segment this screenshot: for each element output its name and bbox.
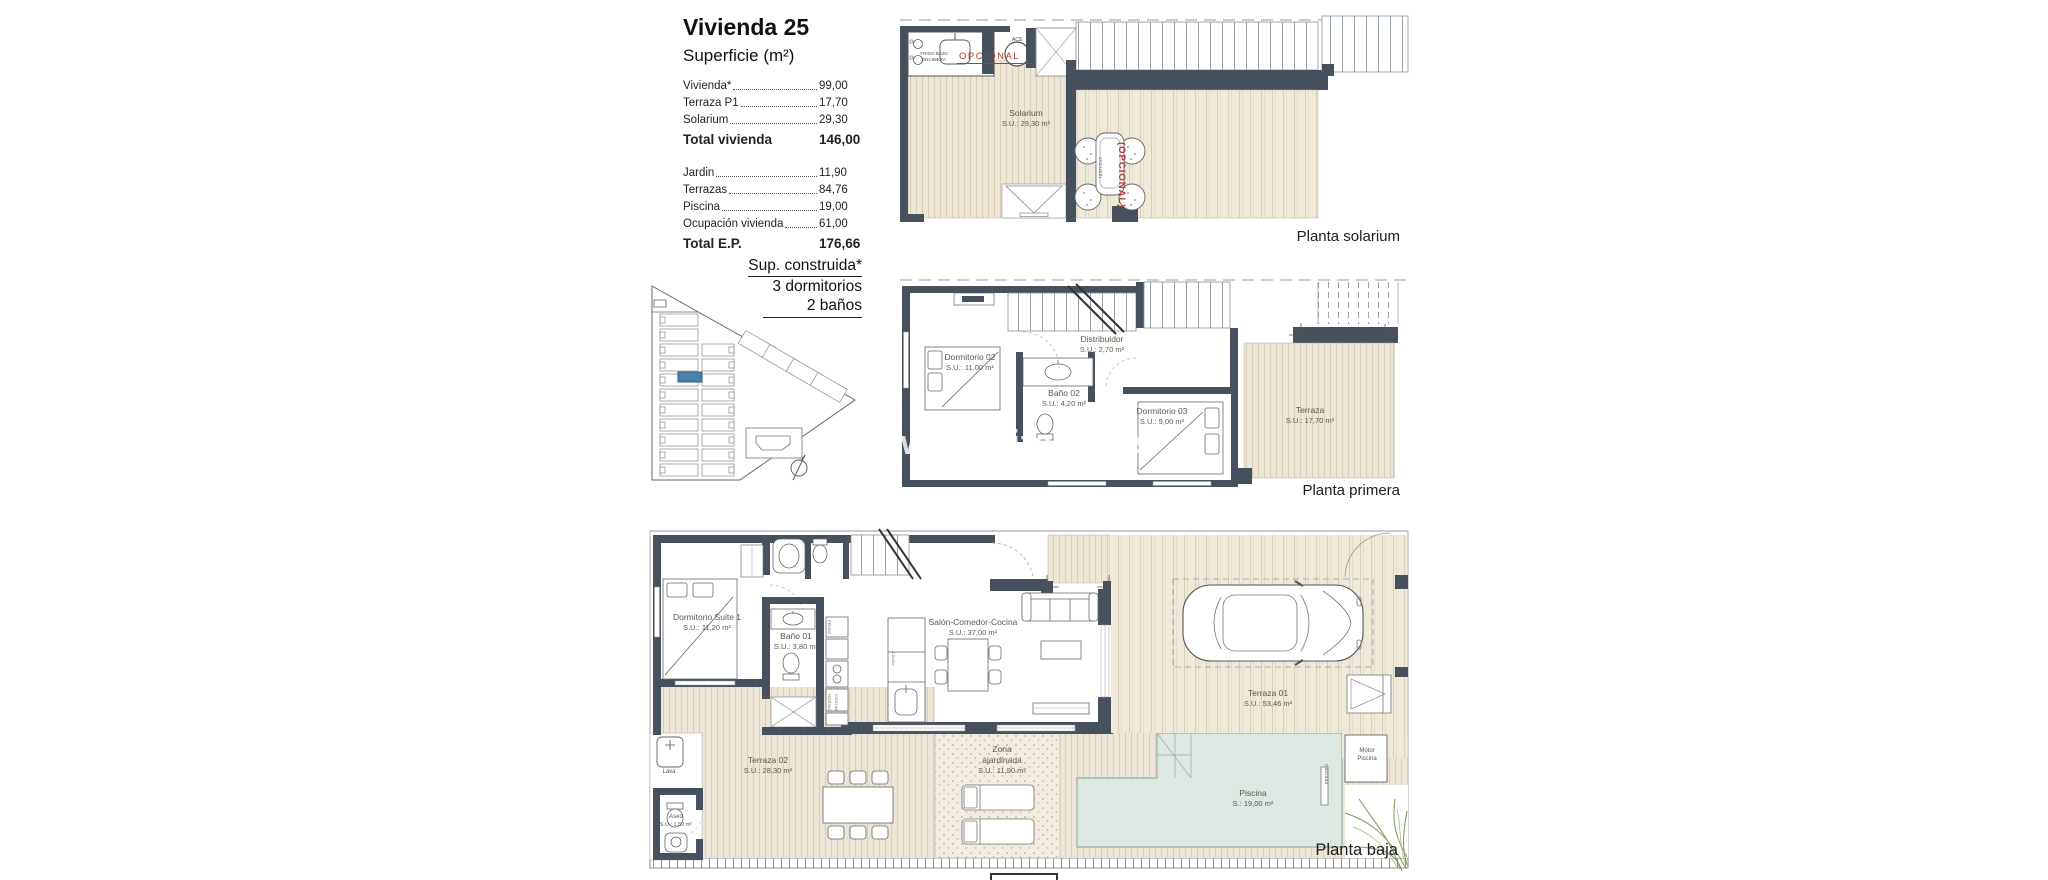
bathtub-icon <box>773 539 805 573</box>
room-label-solarium: Solarium S.U.: 29,30 m² <box>976 108 1076 129</box>
area-row: Solarium29,30 <box>683 109 865 126</box>
storage-box-icon <box>1347 675 1391 713</box>
area-row: Piscina19,00 <box>683 196 865 213</box>
horno-note: HORNO <box>827 694 832 718</box>
room-label-piscina: Piscina S.: 19,00 m² <box>1203 788 1303 809</box>
floorplan-sheet: Vivienda 25 Superficie (m²) Vivienda*99,… <box>0 0 2048 880</box>
toilet-icon <box>813 539 827 563</box>
room-label-salon: Salón-Comedor-Cocina S.U.: 37,00 m² <box>918 617 1028 638</box>
lavavajillas-note: LAVAV. <box>891 652 896 678</box>
shower-icon <box>771 697 816 727</box>
plan-title-solarium: Planta solarium <box>1240 228 1400 245</box>
stairs-icon <box>1144 282 1230 328</box>
laundry-sink-icon <box>657 737 683 767</box>
community-pool-plot <box>746 428 802 458</box>
toilet-icon <box>783 653 799 680</box>
room-label-dormitorio-02: Dormitorio 02 S.U.: 11,00 m² <box>920 352 1020 373</box>
area-row: Terraza P117,70 <box>683 92 865 109</box>
cocina-note: COCINA <box>834 694 839 720</box>
sink-icon <box>771 609 815 629</box>
motor-piscina-note: Motor Piscina <box>1344 747 1390 764</box>
room-label-zona-ajardinada: Zona ajardinada S.U.: 11,90 m² <box>972 744 1032 776</box>
coffee-table-icon <box>1041 641 1081 659</box>
outdoor-dining-table-icon <box>823 771 893 839</box>
area-table: Vivienda*99,00 Terraza P117,70 Solarium2… <box>683 75 865 251</box>
frigo-note: FRIGO BAJO ENCIMERA <box>919 51 949 63</box>
sofa-icon <box>1022 593 1098 621</box>
area-row: Ocupación vivienda61,00 <box>683 213 865 230</box>
frigo-kitchen-note: FRIGO <box>827 620 832 642</box>
plan-title-baja: Planta baja <box>1238 841 1398 860</box>
area-row: Terrazas84,76 <box>683 179 865 196</box>
plan-primera-drawing <box>898 272 1412 506</box>
watermark: www.mediterrane <box>846 424 1143 463</box>
tv-bench-icon <box>1033 703 1089 714</box>
area-row: Jardin11,90 <box>683 162 865 179</box>
cascada-note: Cascada <box>1324 764 1329 808</box>
stairs-icon <box>1322 16 1408 72</box>
highlighted-unit <box>678 372 702 382</box>
total-vivienda-row: Total vivienda146,00 <box>683 126 865 147</box>
stairs-icon <box>1076 22 1318 70</box>
summary-line-2: 3 dormitorios <box>772 278 862 295</box>
sink-icon <box>665 833 687 852</box>
summary-line-1: Sup. construida* <box>748 256 862 277</box>
room-label-terraza-p1: Terraza S.U.: 17,70 m² <box>1260 405 1360 426</box>
pergola-roof <box>1318 282 1398 324</box>
opcional-note: OPCIONAL <box>957 51 1034 64</box>
summary-line-3: 2 baños <box>763 296 862 318</box>
surface-subtitle: Superficie (m²) <box>683 46 865 66</box>
plan-solarium-drawing <box>898 14 1412 254</box>
total-ep-row: Total E.P.176,66 <box>683 230 865 251</box>
room-label-bano-02: Baño 02 S.U.: 4,20 m² <box>1014 388 1114 409</box>
acs-label: ACS <box>1006 37 1028 44</box>
porch-roof <box>1048 535 1110 583</box>
car-icon <box>1183 581 1363 665</box>
compass-icon <box>791 455 807 480</box>
jacuzzi-label: JACUZZI <box>1098 157 1103 191</box>
room-label-terraza-02: Terraza 02 S.U.: 28,30 m² <box>718 755 818 776</box>
stairs-icon <box>851 535 909 575</box>
room-label-distribuidor: Distribuidor S.U.: 2,70 m² <box>1052 334 1152 355</box>
surface-info-panel: Vivienda 25 Superficie (m²) Vivienda*99,… <box>683 14 865 251</box>
construction-summary: Sup. construida* 3 dormitorios 2 baños <box>640 256 862 318</box>
dining-table-icon <box>935 639 1001 691</box>
page-title: Vivienda 25 <box>683 14 865 41</box>
jacuzzi-opcional-label: (OPCIONAL) <box>1116 142 1127 214</box>
area-row: Vivienda*99,00 <box>683 75 865 92</box>
room-label-terraza-01: Terraza 01 S.U.: 53,46 m² <box>1218 688 1318 709</box>
scale-box <box>990 873 1058 880</box>
lava-note: Lava <box>649 768 689 776</box>
room-label-suite: Dormitorio Suite 1 S.U.: 11,20 m² <box>652 612 762 633</box>
plan-title-primera: Planta primera <box>1240 482 1400 499</box>
room-label-aseo: Aseo S.U.: 1,50 m² <box>646 814 706 829</box>
